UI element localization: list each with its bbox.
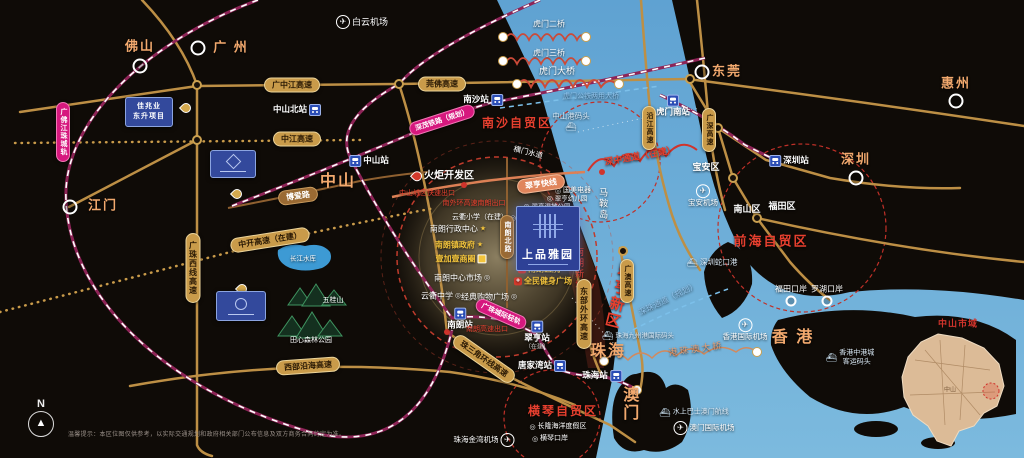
road-junction-node: [752, 213, 762, 223]
station: 唐家湾站: [518, 360, 566, 372]
station-sublabel: （在建）: [525, 344, 549, 351]
compass-north-label: N: [28, 398, 54, 410]
port-label-line: 客运码头: [843, 359, 871, 367]
station: 翠亨站（在建）: [524, 321, 550, 352]
city-label: 珠海: [590, 343, 626, 361]
city-label: 深圳: [841, 153, 871, 168]
star-icon: ★: [480, 226, 486, 233]
freetrade-zone-label: 南沙自贸区: [482, 117, 552, 131]
star-icon: ★: [477, 242, 483, 249]
city-marker-ring: [695, 65, 710, 80]
border-checkpoint-label: 福田口岸: [775, 284, 807, 293]
city-label: 香 港: [772, 329, 814, 347]
bridge-label: 虎门三桥: [533, 48, 565, 57]
bridge-endpoint-dot: [498, 56, 508, 66]
developer-logo-glyph: [235, 298, 247, 310]
mountain-icons: [278, 284, 346, 338]
project-subtitle-rule: [528, 264, 568, 265]
poi-dot-icon: ◎: [511, 294, 517, 301]
road-junction-node: [618, 246, 628, 256]
bridge-endpoint-dot: [752, 347, 762, 357]
city-label: 惠州: [941, 77, 971, 92]
road-junction-node: [685, 74, 695, 84]
road-name-pill: 广澳高速: [620, 259, 634, 303]
bridge-endpoint-dot: [581, 56, 591, 66]
airport-icon: ✈: [738, 318, 752, 332]
station-label: 深圳站: [783, 156, 809, 166]
compass-arrow-icon: ▲: [28, 411, 54, 437]
station: 中山北站: [273, 104, 321, 116]
road-name-pill: 东部外环高速: [577, 279, 592, 349]
developer-logo-text: 佳兆业: [137, 103, 161, 111]
poi-text: 南朗镇政府: [435, 240, 475, 249]
airport: ✈澳门国际机场: [674, 421, 735, 435]
poi-text: 翠亨幼儿园: [555, 195, 588, 202]
train-station-icon: [769, 155, 781, 167]
ship-icon: ⛴: [602, 332, 613, 341]
district-label: 福田区: [768, 201, 795, 211]
port-label-line: 珠海九州港国际码头: [615, 332, 674, 339]
bay-area-location-map: 上品雅园 N ▲ 温馨提示：本区位图仅供参考，以实际交通规划和政府相关部门公布信…: [0, 0, 1024, 458]
freetrade-zone-label: 横琴自贸区: [528, 405, 598, 419]
train-station-icon: [667, 95, 679, 107]
poi-text: 横琴口岸: [540, 435, 568, 443]
poi-text: 国美电器: [563, 187, 591, 195]
airport: ✈白云机场: [336, 15, 388, 29]
city-marker-ring: [133, 59, 148, 74]
station-label: 中山北站: [273, 105, 307, 115]
poi-text: 南朗中心市场: [434, 273, 482, 282]
district-label: 南山区: [733, 204, 760, 214]
train-station-icon: [491, 94, 503, 106]
train-station-icon: [454, 308, 466, 320]
city-marker-ring: [949, 94, 964, 109]
port-label: 珠海九州港国际码头: [615, 332, 674, 339]
road-junction-node: [394, 79, 404, 89]
poi-label: +全民健身广场: [514, 276, 572, 285]
border-checkpoint-ring: [822, 296, 833, 307]
road-junction-node: [728, 173, 738, 183]
bridge-endpoint-dot: [498, 32, 508, 42]
ship-icon: ⛴: [565, 122, 576, 131]
border-checkpoint-label: 罗湖口岸: [811, 284, 843, 293]
road-name-pill: 南朗北路: [500, 215, 514, 259]
airport-label: 白云机场: [352, 17, 388, 27]
developer-logo-card: [210, 150, 256, 178]
train-station-icon: [349, 155, 361, 167]
station: 中山站: [349, 155, 389, 167]
poi-text: 中山城区快速出口: [399, 190, 455, 198]
project-logo-card: 上品雅园: [516, 206, 580, 271]
airport: 珠海金湾机场✈: [454, 433, 515, 447]
city-marker-ring: [191, 41, 206, 56]
poi-dot-icon: ◎: [484, 275, 490, 282]
compass: N ▲: [28, 398, 54, 437]
poi-dot-icon: ◎: [529, 423, 535, 430]
train-station-icon: [531, 321, 543, 333]
bridge-endpoint-dot: [614, 79, 624, 89]
station-label: 虎门南站: [656, 108, 690, 118]
station: 珠海站: [582, 370, 622, 382]
bridge-endpoint-dot: [581, 32, 591, 42]
developer-logo-script: [228, 311, 254, 315]
station-label: 中山站: [363, 156, 389, 166]
road-junction-node: [192, 80, 202, 90]
location-pin-icon: [410, 169, 424, 183]
port-label: 深圳蛇口港: [700, 259, 738, 268]
nature-label: 田心森林公园: [290, 337, 332, 345]
poi-label: 壹加壹商圈: [436, 254, 487, 263]
poi-dot-icon: ◎: [547, 196, 553, 203]
poi-label: ◎横琴口岸: [532, 435, 568, 443]
freetrade-zone-label: 前海自贸区: [733, 235, 808, 250]
road-name-pill: 中江高速: [273, 132, 321, 147]
poi-text: 云衢中学: [421, 291, 453, 300]
poi-text: 南外环高速南朗出口: [443, 200, 506, 208]
road-name-pill: 广珠西线高速: [186, 233, 201, 303]
disclaimer-text: 温馨提示：本区位图仅供参考，以实际交通规划和政府相关部门公布信息及双方商务合同约…: [68, 429, 345, 438]
airport-label: 香港国际机场: [723, 333, 768, 342]
train-station-icon: [554, 360, 566, 372]
ship-icon: ⛴: [687, 259, 698, 268]
shopping-icon: [478, 255, 487, 264]
developer-logo-card: [216, 291, 266, 321]
road-junction-node: [192, 135, 202, 145]
airport-icon: ✈: [501, 433, 515, 447]
port-label: 中山港码头: [552, 113, 590, 122]
rail-name-pill: 广佛江珠城轨: [56, 102, 70, 162]
ship-icon: ⛴: [659, 409, 670, 418]
poi-label: ◎翠亨幼儿园: [547, 195, 588, 202]
station-label: 珠海站: [582, 371, 608, 381]
poi-dot-icon: ◎: [532, 435, 538, 442]
port: ⛴珠海九州港国际码头: [602, 332, 674, 341]
poi-label: 南外环高速南朗出口: [443, 200, 506, 208]
road-name-pill: 广深高速: [702, 108, 716, 152]
bridge-label: 虎门公铁两用大桥: [563, 93, 619, 101]
developer-logo-card: 佳兆业东升项目: [125, 97, 173, 127]
poi-label: 云衢中学◎: [421, 291, 461, 300]
inset-map-title: 中山市域: [938, 317, 978, 330]
hospital-cross-icon: +: [514, 277, 522, 285]
airport-label: 澳门国际机场: [690, 424, 735, 433]
bridge-label: 虎门二桥: [533, 19, 565, 28]
airport: ✈香港国际机场: [723, 318, 768, 342]
poi-label: ◎长隆海洋度假区: [529, 423, 586, 431]
poi-text: 南朗行政中心: [430, 224, 478, 233]
poi-text: 全民健身广场: [524, 276, 572, 285]
poi-label: 南朗行政中心★: [430, 224, 486, 233]
poi-label: 南朗中心市场◎: [434, 273, 490, 282]
airport: ✈宝安机场: [688, 184, 718, 208]
station: 虎门南站: [656, 95, 690, 118]
city-label: 东莞: [712, 65, 742, 80]
project-building-icon: [539, 214, 557, 238]
area-name-vertical-label: 马鞍岛: [598, 188, 608, 221]
port-label: 香港中港城客运码头: [839, 349, 874, 366]
airport-icon: ✈: [696, 184, 710, 198]
poi-label: 南朗镇政府★: [435, 240, 483, 249]
city-marker-ring: [849, 171, 864, 186]
city-marker-ring: [63, 200, 78, 215]
road-name-pill: 莞佛高速: [418, 77, 466, 92]
district-label: 宝安区: [692, 162, 719, 172]
airport-label: 珠海金湾机场: [454, 436, 499, 445]
ship-icon: ⛴: [826, 354, 837, 363]
port-label-line: 深圳蛇口港: [700, 259, 738, 268]
inset-map-center-label: 中山: [944, 385, 956, 394]
station-label: 翠亨站: [524, 334, 550, 344]
bridge-endpoint-dot: [512, 79, 522, 89]
poi-text: 长隆海洋度假区: [538, 423, 587, 431]
station-label: 唐家湾站: [518, 361, 552, 371]
developer-logo-text: 东升项目: [133, 113, 165, 121]
station: 深圳站: [769, 155, 809, 167]
port: 中山港码头⛴: [552, 113, 590, 132]
port-label-line: 水上巴士澳门航线: [673, 409, 729, 417]
poi-text: 火炬开发区: [424, 170, 474, 182]
train-station-icon: [610, 370, 622, 382]
red-junction-dot: [461, 182, 467, 188]
poi-text: 南朗高速出口: [466, 326, 508, 334]
airport-icon: ✈: [336, 15, 350, 29]
border-checkpoint-ring: [786, 296, 797, 307]
city-label: 中山: [320, 173, 356, 191]
train-station-icon: [309, 104, 321, 116]
poi-label: 火炬开发区: [412, 170, 474, 182]
road-name-pill: 沿江高速: [642, 106, 656, 150]
poi-label: 南朗高速出口: [466, 326, 508, 334]
road-name-pill: 广中江高速: [264, 78, 320, 93]
red-junction-dot: [599, 169, 605, 175]
airport-icon: ✈: [674, 421, 688, 435]
port: ⛴水上巴士澳门航线: [659, 409, 728, 418]
city-label: 江门: [88, 199, 118, 214]
project-title: 上品雅园: [522, 246, 574, 262]
port: ⛴深圳蛇口港: [687, 259, 738, 268]
city-label: 佛山: [125, 40, 155, 55]
port-label: 水上巴士澳门航线: [673, 409, 729, 417]
poi-label: 中山城区快速出口: [399, 190, 455, 198]
bridge-label: 虎门大桥: [539, 66, 575, 76]
nature-label: 长江水库: [290, 255, 316, 262]
poi-text: 壹加壹商圈: [436, 254, 476, 263]
port-label-line: 中山港码头: [552, 113, 590, 122]
city-label: 澳门: [619, 386, 637, 422]
port: ⛴香港中港城客运码头: [826, 349, 874, 366]
developer-logo-glyph: [225, 154, 241, 170]
city-label: 广 州: [213, 41, 249, 56]
port-label-line: 香港中港城: [839, 349, 874, 357]
airport-label: 宝安机场: [688, 199, 718, 208]
nature-label: 五桂山: [323, 297, 344, 305]
